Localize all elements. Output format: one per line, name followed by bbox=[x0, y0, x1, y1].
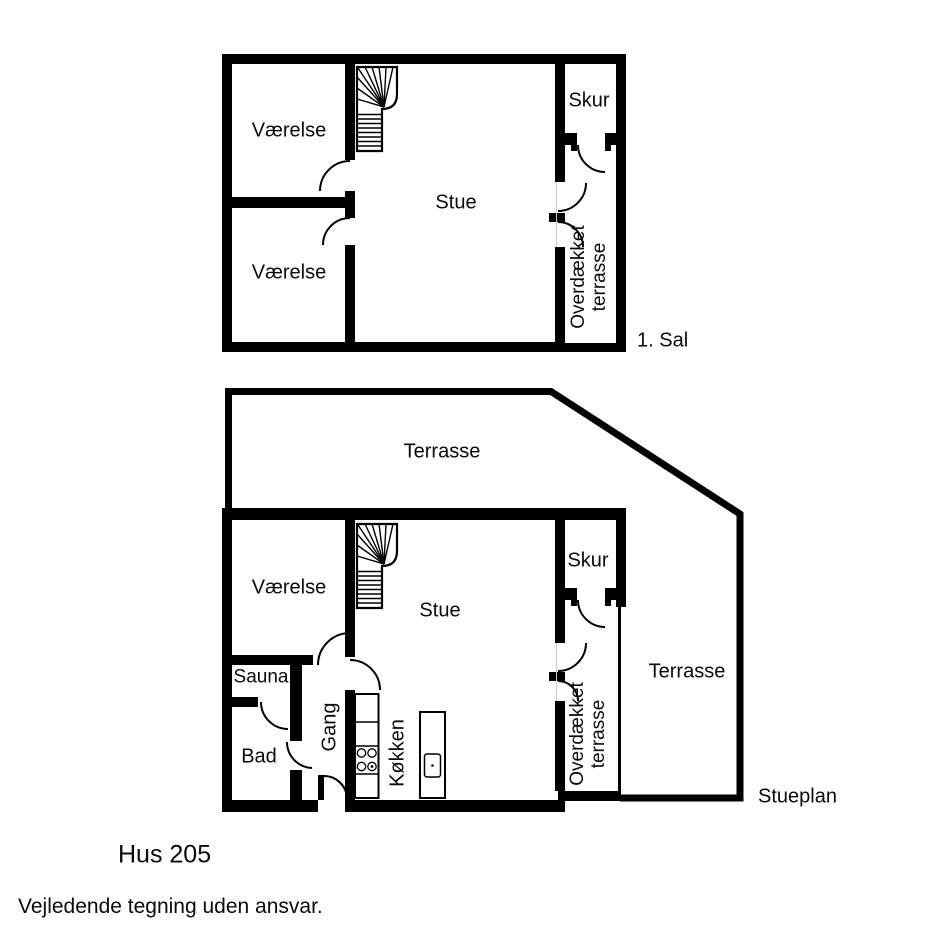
plan-label-first-floor: 1. Sal bbox=[637, 331, 688, 352]
wall bbox=[555, 588, 577, 600]
wall bbox=[222, 197, 350, 208]
room-label-koekken: Køkken bbox=[388, 719, 409, 787]
first-floor-plan bbox=[222, 54, 626, 352]
room-label-skur-first: Skur bbox=[568, 91, 609, 112]
wall bbox=[345, 520, 355, 657]
wall bbox=[345, 245, 355, 342]
wall bbox=[605, 588, 616, 600]
door-arc bbox=[350, 660, 380, 690]
wall bbox=[605, 133, 616, 145]
disclaimer-text: Vejledende tegning uden ansvar. bbox=[18, 895, 323, 919]
room-label-terrasse-top: Terrasse bbox=[404, 442, 481, 463]
wall bbox=[571, 145, 577, 151]
wall bbox=[558, 791, 620, 801]
door-arc bbox=[323, 218, 350, 245]
wall bbox=[605, 145, 611, 151]
door-arc bbox=[578, 600, 605, 627]
room-label-overdaekket-first: Overdækket terrasse bbox=[568, 225, 610, 328]
door-arc bbox=[287, 742, 312, 768]
door-arc bbox=[578, 145, 605, 172]
wall bbox=[555, 64, 565, 182]
room-label-stue-ground: Stue bbox=[419, 601, 460, 622]
door-arc bbox=[558, 643, 586, 671]
island-sink-icon bbox=[420, 712, 445, 798]
room-label-skur-ground: Skur bbox=[567, 551, 608, 572]
room-label-terrasse-right: Terrasse bbox=[649, 662, 726, 683]
ground-floor-plan bbox=[222, 392, 740, 813]
plan-label-ground-floor: Stueplan bbox=[758, 787, 837, 808]
room-label-vaerelse-top: Værelse bbox=[252, 121, 326, 142]
wall bbox=[290, 655, 302, 707]
room-label-vaerelse-bottom: Værelse bbox=[252, 263, 326, 284]
wall bbox=[616, 508, 626, 607]
room-label-sauna: Sauna bbox=[234, 667, 289, 688]
wall bbox=[222, 54, 626, 64]
room-label-bad: Bad bbox=[241, 747, 277, 768]
wall bbox=[555, 520, 565, 643]
wall bbox=[555, 247, 565, 342]
door-arc bbox=[558, 183, 586, 211]
wall bbox=[555, 133, 577, 145]
wall bbox=[222, 508, 626, 520]
wall bbox=[222, 342, 565, 352]
door-arc bbox=[320, 161, 350, 191]
room-label-gang: Gang bbox=[320, 703, 341, 752]
door-arc bbox=[324, 776, 347, 799]
wall bbox=[558, 343, 616, 352]
wall bbox=[616, 54, 626, 352]
wall bbox=[347, 800, 565, 812]
wall bbox=[222, 800, 318, 812]
floor-plan-page: Værelse Værelse Stue Skur Overdækket ter… bbox=[0, 0, 938, 938]
room-label-stue-first: Stue bbox=[435, 193, 476, 214]
wall bbox=[605, 600, 611, 606]
wall bbox=[290, 770, 302, 812]
wall bbox=[290, 707, 302, 741]
door-arc bbox=[261, 702, 288, 729]
room-label-vaerelse-ground: Værelse bbox=[252, 578, 326, 599]
page-title: Hus 205 bbox=[118, 841, 211, 870]
wall bbox=[571, 600, 577, 606]
room-label-overdaekket-ground: Overdækket terrasse bbox=[567, 682, 609, 785]
stove-icon bbox=[355, 694, 379, 798]
wall bbox=[345, 64, 355, 160]
wall bbox=[222, 697, 258, 707]
door-leaf bbox=[318, 775, 324, 800]
wall bbox=[555, 701, 565, 791]
